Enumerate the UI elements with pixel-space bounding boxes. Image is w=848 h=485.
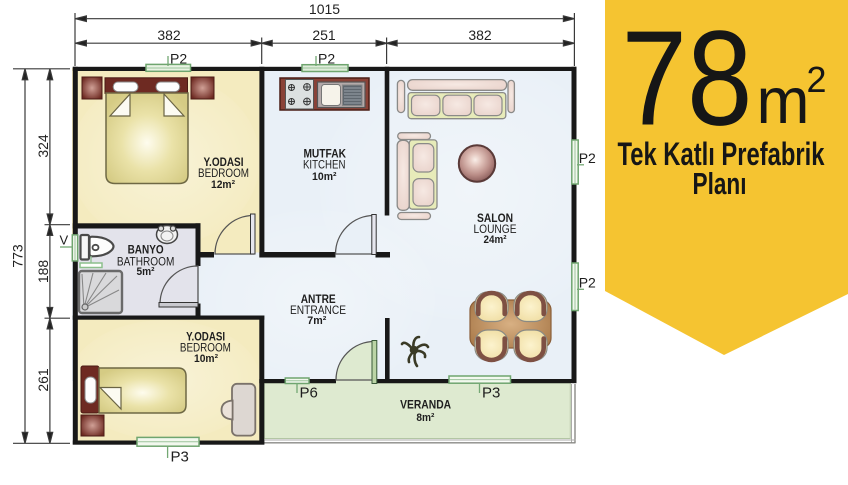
svg-text:382: 382 bbox=[468, 27, 492, 43]
svg-text:m: m bbox=[757, 64, 810, 137]
svg-text:12m²: 12m² bbox=[211, 179, 235, 191]
svg-text:P3: P3 bbox=[482, 385, 500, 402]
svg-text:P2: P2 bbox=[579, 150, 596, 166]
svg-text:8m²: 8m² bbox=[416, 412, 434, 424]
svg-text:188: 188 bbox=[35, 260, 51, 284]
svg-text:10m²: 10m² bbox=[312, 171, 337, 183]
svg-text:P3: P3 bbox=[171, 449, 189, 466]
svg-text:7m²: 7m² bbox=[307, 315, 326, 327]
svg-text:Planı: Planı bbox=[693, 166, 747, 201]
svg-text:1015: 1015 bbox=[309, 1, 340, 17]
svg-text:V: V bbox=[60, 233, 69, 248]
svg-text:2: 2 bbox=[807, 59, 827, 100]
svg-text:P2: P2 bbox=[170, 51, 187, 67]
svg-text:261: 261 bbox=[35, 368, 51, 392]
svg-text:251: 251 bbox=[312, 27, 336, 43]
svg-text:78: 78 bbox=[622, 3, 753, 154]
svg-text:P2: P2 bbox=[579, 275, 596, 291]
svg-text:324: 324 bbox=[35, 134, 51, 158]
svg-text:VERANDA: VERANDA bbox=[400, 398, 451, 412]
svg-text:5m²: 5m² bbox=[137, 266, 155, 278]
svg-text:KITCHEN: KITCHEN bbox=[303, 158, 346, 172]
svg-text:10m²: 10m² bbox=[194, 353, 218, 365]
svg-text:P2: P2 bbox=[318, 51, 335, 67]
svg-text:773: 773 bbox=[9, 244, 25, 268]
svg-text:BEDROOM: BEDROOM bbox=[198, 166, 249, 180]
svg-text:24m²: 24m² bbox=[484, 234, 507, 246]
svg-text:P6: P6 bbox=[300, 385, 318, 402]
svg-text:382: 382 bbox=[157, 27, 181, 43]
